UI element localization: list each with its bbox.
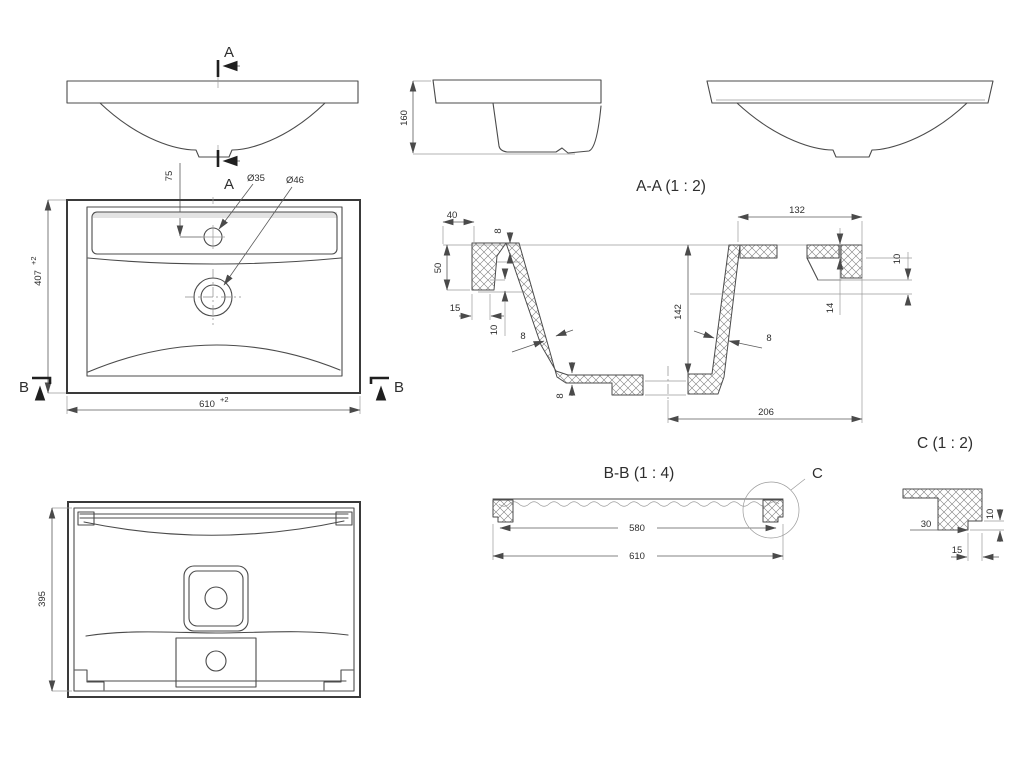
bottom-overflow-hole bbox=[206, 651, 226, 671]
detail-c-leader bbox=[791, 479, 805, 490]
dim-610-tol: +2 bbox=[220, 395, 229, 404]
detail-c-dim-10-ext bbox=[970, 521, 1004, 530]
detail-c-dim-15: 15 bbox=[952, 545, 963, 556]
bottom-drain-box-outer bbox=[184, 566, 248, 631]
dim-faucet-dia: Ø35 bbox=[247, 173, 265, 184]
side-view: 160 bbox=[399, 80, 601, 154]
bottom-bracket-right bbox=[324, 670, 353, 690]
aa-deck-right-of-hole bbox=[807, 245, 839, 258]
aa-dim-206: 206 bbox=[758, 407, 774, 418]
aa-right-wall-and-floor bbox=[688, 245, 740, 394]
technical-drawing-canvas: A A 75 Ø35 Ø46 407 +2 bbox=[0, 0, 1024, 768]
section-b-mark-left bbox=[32, 378, 50, 384]
plan-outer-edge bbox=[67, 200, 360, 393]
dim-407-tol: +2 bbox=[29, 256, 38, 265]
bb-dim-610: 610 bbox=[629, 551, 645, 562]
dim-drain-dia: Ø46 bbox=[286, 175, 304, 186]
aa-drain-bore-lines bbox=[645, 381, 686, 395]
aa-dim-8wr-a1 bbox=[694, 331, 714, 338]
aa-dim-10-left: 10 bbox=[489, 325, 500, 336]
bottom-view: 395 bbox=[37, 502, 360, 697]
dim-407-group: 407 +2 bbox=[29, 256, 44, 285]
detail-c-dim-10: 10 bbox=[985, 509, 996, 520]
front-view: A A 75 bbox=[67, 44, 358, 237]
bottom-drain-box-inner bbox=[189, 571, 243, 626]
aa-dim-8-wall-left: 8 bbox=[520, 331, 525, 342]
dim-160: 160 bbox=[399, 110, 410, 126]
dim-610: 610 bbox=[199, 399, 215, 410]
detail-c-ref-label: C bbox=[812, 465, 823, 482]
aa-dim-50: 50 bbox=[433, 263, 444, 274]
section-aa: A-A (1 : 2) 40 8 50 15 10 bbox=[433, 178, 912, 423]
aa-dim-15-ext bbox=[472, 294, 490, 320]
aa-dim-8wr-a2 bbox=[729, 341, 762, 348]
side-counter-slab bbox=[433, 80, 601, 103]
aa-dim-8wl-a1 bbox=[512, 341, 544, 352]
plan-deck-shading bbox=[93, 212, 337, 218]
front-bowl-outline bbox=[100, 103, 325, 157]
plan-view: Ø35 Ø46 407 +2 610 +2 B B bbox=[19, 173, 404, 414]
aa-dim-8-top: 8 bbox=[493, 228, 504, 233]
detail-c: C (1 : 2) 30 15 10 bbox=[903, 435, 1004, 561]
plan-bowl-front-edge bbox=[88, 345, 340, 372]
plan-bowl-back-edge bbox=[88, 258, 341, 264]
plan-inner-edge bbox=[87, 207, 342, 376]
cut-label-b-right: B bbox=[394, 379, 404, 396]
dim-407: 407 bbox=[33, 270, 44, 286]
aa-dim-8-floor: 8 bbox=[555, 393, 566, 398]
front-counter-slab bbox=[67, 81, 358, 103]
aa-dim-8-wall-right: 8 bbox=[766, 333, 771, 344]
drain-centerlines bbox=[185, 269, 241, 325]
detail-c-dim-15-ext bbox=[968, 533, 982, 561]
aa-left-block bbox=[472, 243, 506, 290]
aa-dim-132: 132 bbox=[789, 205, 805, 216]
bb-left-cap bbox=[493, 500, 513, 522]
dim-395: 395 bbox=[37, 591, 48, 607]
bb-scallop-line bbox=[499, 502, 779, 507]
bottom-back-lines bbox=[80, 514, 348, 518]
aa-dim-15: 15 bbox=[450, 303, 461, 314]
bottom-bowl-curve bbox=[84, 521, 344, 535]
bottom-overflow-recess bbox=[176, 638, 256, 687]
aa-dim-142: 142 bbox=[673, 304, 684, 320]
cut-label-a-top: A bbox=[224, 44, 234, 61]
washbasin-drawing: A A 75 Ø35 Ø46 407 +2 bbox=[0, 0, 1024, 768]
aa-dim-14: 14 bbox=[825, 303, 836, 314]
section-bb: B-B (1 : 4) 580 610 C bbox=[493, 465, 823, 562]
section-aa-title: A-A (1 : 2) bbox=[636, 178, 706, 195]
aa-dim-10r-tail bbox=[866, 252, 912, 280]
section-b-mark-right bbox=[371, 378, 389, 384]
bottom-drain-hole bbox=[205, 587, 227, 609]
aa-dim-8wl-a2 bbox=[556, 330, 573, 336]
section-bb-title: B-B (1 : 4) bbox=[604, 465, 675, 482]
detail-c-profile bbox=[903, 489, 982, 530]
aa-left-wall-and-floor bbox=[506, 243, 643, 395]
rear-view bbox=[707, 81, 993, 157]
drain-dia-leader bbox=[224, 187, 292, 285]
cut-label-a-bottom: A bbox=[224, 176, 234, 193]
aa-dim-40-ext bbox=[443, 226, 474, 244]
dim-75: 75 bbox=[164, 171, 175, 182]
plan-faucet-deck bbox=[92, 212, 337, 254]
aa-deck-left-of-hole bbox=[740, 245, 777, 258]
bottom-front-curve bbox=[86, 632, 348, 636]
aa-dim-40: 40 bbox=[447, 210, 458, 221]
bb-dim-580: 580 bbox=[629, 523, 645, 534]
detail-c-dim-30: 30 bbox=[921, 519, 932, 530]
bottom-bracket-left bbox=[75, 670, 104, 690]
aa-dim-10-right: 10 bbox=[892, 254, 903, 265]
faucet-hole-crosshair bbox=[201, 225, 225, 249]
bb-right-cap bbox=[763, 500, 783, 522]
detail-c-title: C (1 : 2) bbox=[917, 435, 973, 452]
rear-bowl-outline bbox=[737, 103, 967, 157]
aa-right-end-block bbox=[841, 245, 862, 278]
bottom-outer-edge bbox=[68, 502, 360, 697]
dim-407-ext bbox=[48, 200, 66, 393]
aa-faucet-recess bbox=[807, 258, 841, 280]
cut-label-b-left: B bbox=[19, 379, 29, 396]
side-bowl-outline bbox=[493, 103, 601, 153]
